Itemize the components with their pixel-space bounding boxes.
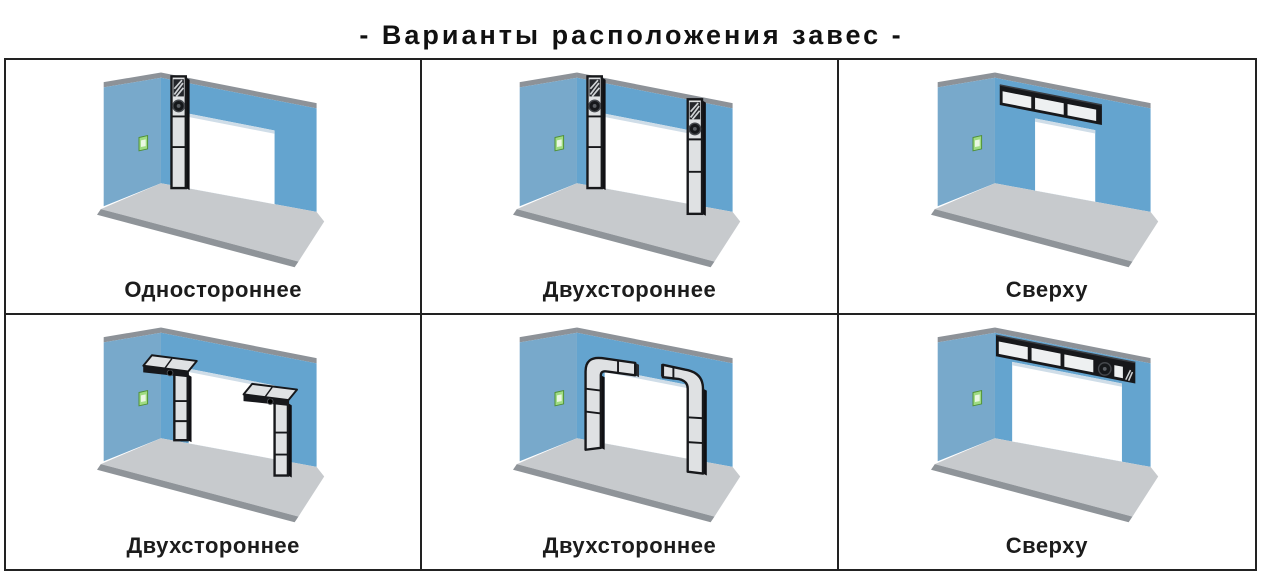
placement-label: Двухстороннее — [543, 277, 716, 313]
placement-cell-double-side: Двухстороннее — [422, 60, 838, 315]
room-illustration — [422, 315, 836, 534]
placement-cell-top-wide: Сверху — [839, 315, 1255, 570]
air-curtain-column — [275, 402, 292, 477]
room-illustration-svg — [13, 61, 413, 276]
light-switch-icon — [973, 135, 982, 150]
placement-label: Двухстороннее — [543, 533, 716, 569]
room-illustration — [6, 315, 420, 534]
air-curtain-unit-vertical — [172, 76, 190, 190]
room-illustration — [839, 315, 1255, 534]
placement-cell-double-side-hood: Двухстороннее — [6, 315, 422, 570]
room-illustration-svg — [429, 61, 829, 276]
room-illustration — [422, 60, 836, 277]
room-illustration — [839, 60, 1255, 277]
room-illustration — [6, 60, 420, 277]
light-switch-icon — [973, 391, 982, 406]
room-illustration-svg — [847, 61, 1247, 276]
light-switch-icon — [139, 391, 148, 406]
placement-label: Двухстороннее — [126, 533, 299, 569]
air-curtain-column — [174, 374, 191, 443]
room-illustration-svg — [13, 316, 413, 531]
placement-label: Сверху — [1006, 533, 1088, 569]
placement-label: Сверху — [1006, 277, 1088, 313]
air-curtain-unit-vertical — [688, 99, 706, 215]
page-title: - Варианты расположения завес - — [0, 20, 1263, 51]
placement-grid: Одностороннее Двухстороннее — [4, 58, 1257, 571]
light-switch-icon — [555, 391, 564, 406]
room-illustration-svg — [429, 316, 829, 531]
doorway — [1035, 118, 1095, 201]
air-curtain-unit-vertical — [588, 76, 606, 190]
light-switch-icon — [555, 135, 564, 150]
placement-label: Одностороннее — [124, 277, 302, 313]
placement-cell-single-side: Одностороннее — [6, 60, 422, 315]
light-switch-icon — [139, 135, 148, 150]
placement-cell-top-narrow: Сверху — [839, 60, 1255, 315]
room-illustration-svg — [847, 316, 1247, 531]
placement-cell-double-side-curved: Двухстороннее — [422, 315, 838, 570]
